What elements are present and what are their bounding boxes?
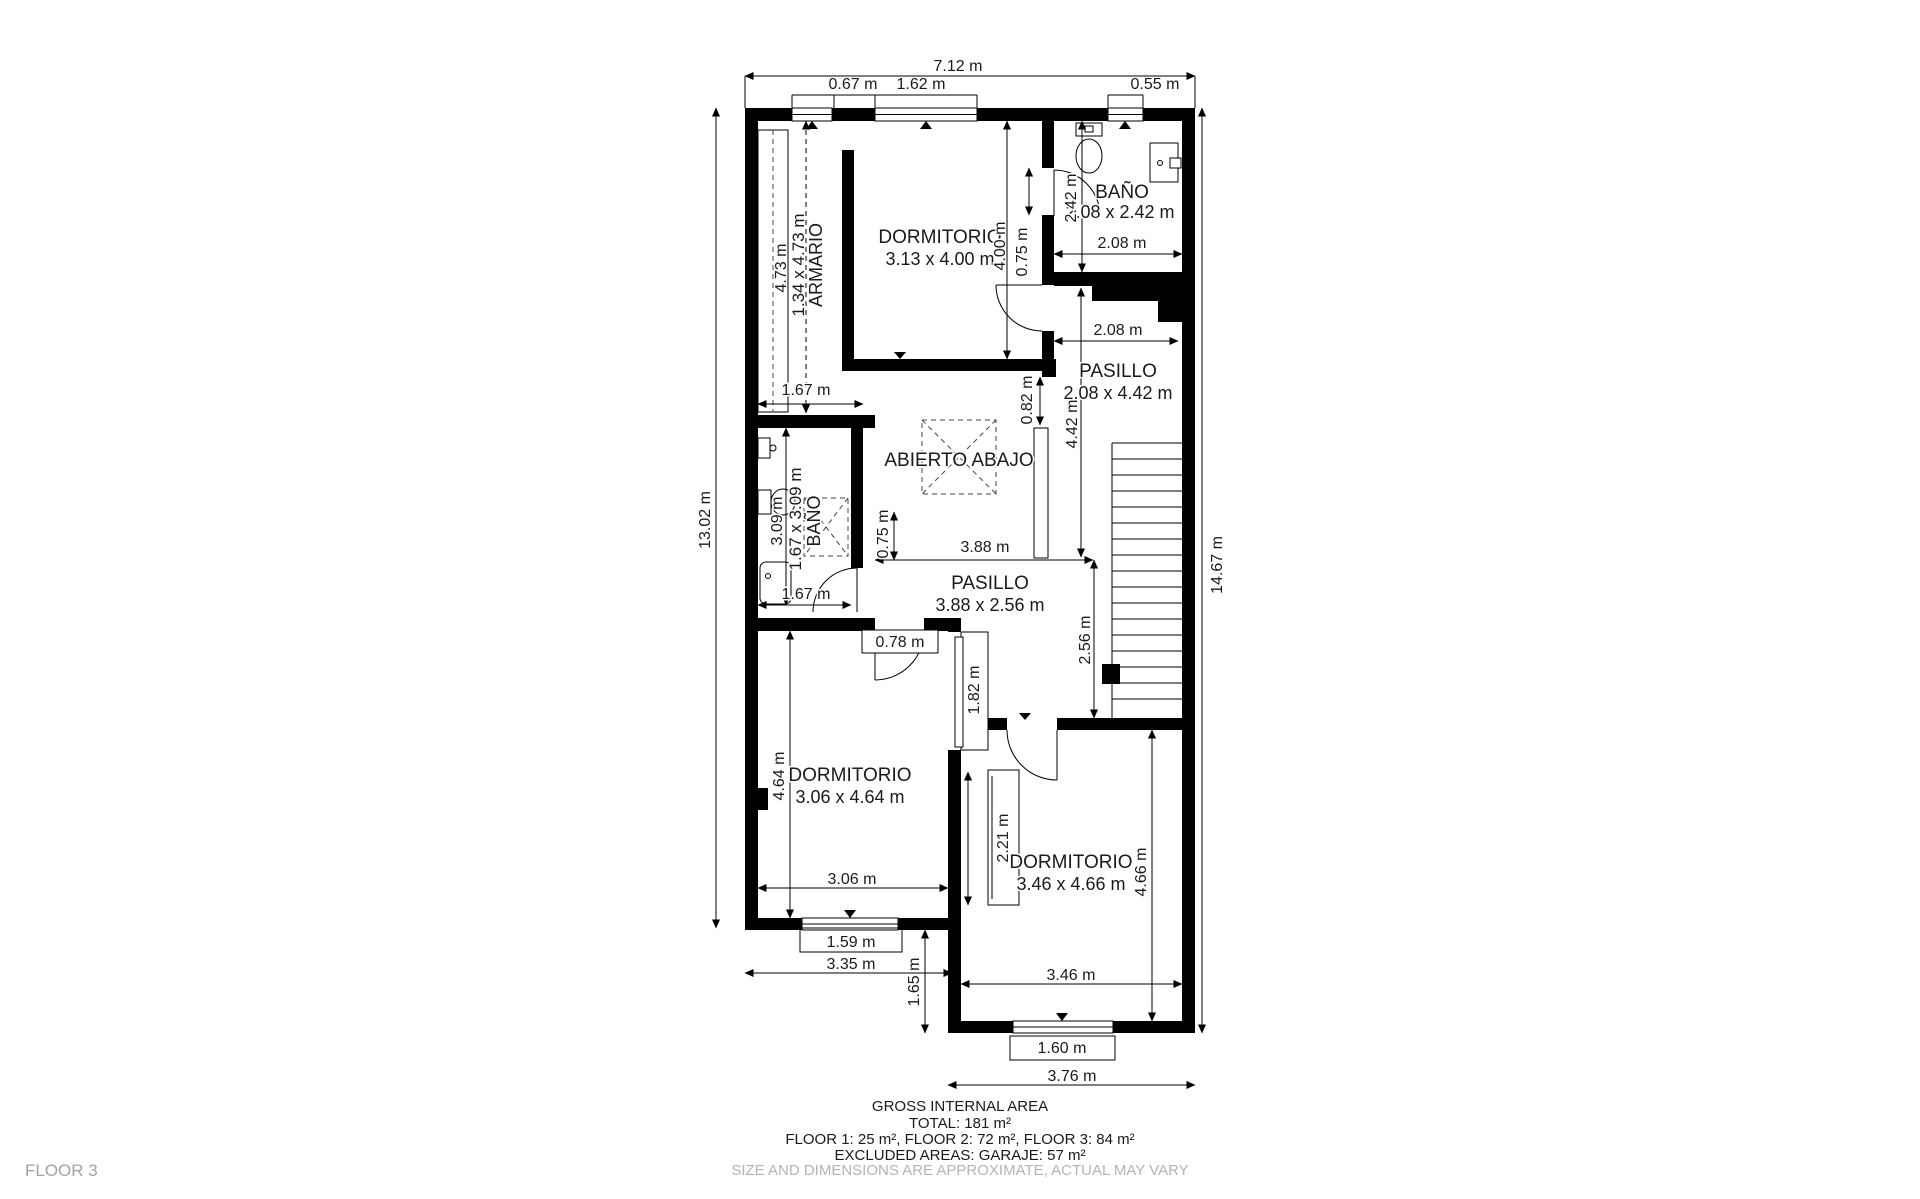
floor-plan-page: 7.12 m 0.67 m 1.62 m 0.55 m 13.02 m 14.6… <box>0 0 1920 1199</box>
room-label-armario: ARMARIO <box>806 223 826 307</box>
dim-offset-082: 0.82 m <box>1019 376 1036 425</box>
dim-sliding-1: 1.82 m <box>966 666 983 715</box>
dim-pasillo-height: 4.42 m <box>1064 400 1081 449</box>
dim-window-left: 0.67 m <box>829 76 878 93</box>
dim-height-left: 13.02 m <box>697 491 714 549</box>
room-size-dormitorio-bl: 3.06 x 4.64 m <box>795 787 904 807</box>
dim-dorm-br-height: 4.66 m <box>1133 848 1150 897</box>
washbasin-icon <box>758 438 770 458</box>
dim-bano-top-width: 2.08 m <box>1098 235 1147 252</box>
dim-height-right: 14.67 m <box>1209 536 1226 594</box>
dim-bano-left-height: 3.09 m <box>769 497 786 546</box>
room-label-bano-top: BAÑO <box>1095 181 1149 203</box>
room-size-armario: 1.34 x 4.73 m <box>789 213 808 316</box>
room-label-dormitorio-br: DORMITORIO <box>1009 852 1132 873</box>
toilet-button-icon <box>1085 126 1093 132</box>
sink-tap-icon <box>1170 158 1181 168</box>
dim-door-top: 0.75 m <box>1014 228 1031 277</box>
dim-section-right: 3.76 m <box>1048 1068 1097 1085</box>
door-dormitorio-top <box>996 285 1042 331</box>
room-label-pasillo: PASILLO <box>1079 361 1157 382</box>
dim-passage-075: 0.75 m <box>875 510 892 559</box>
dim-offset-165: 1.65 m <box>906 958 923 1007</box>
dim-dorm-bl-height: 4.64 m <box>771 752 788 801</box>
room-size-bano-top: 2.08 x 2.42 m <box>1065 202 1174 222</box>
dim-armario-height: 4.73 m <box>773 244 790 293</box>
dim-dorm-top-height: 4.00 m <box>992 222 1009 271</box>
dim-vestibule-width: 1.67 m <box>782 382 831 399</box>
dim-pasillo-width: 2.08 m <box>1094 322 1143 339</box>
room-size-pasillo-lower: 3.88 x 2.56 m <box>935 595 1044 615</box>
room-label-dormitorio-bl: DORMITORIO <box>788 765 911 786</box>
floor-plan-drawing: 7.12 m 0.67 m 1.62 m 0.55 m 13.02 m 14.6… <box>0 0 1920 1199</box>
footer-title: GROSS INTERNAL AREA <box>872 1098 1048 1115</box>
dim-pasillo-lower-height: 2.56 m <box>1077 616 1094 665</box>
dim-bano-top-height: 2.42 m <box>1063 174 1080 223</box>
floor-label: FLOOR 3 <box>25 1161 98 1180</box>
dim-window-bl: 1.59 m <box>827 934 876 951</box>
dim-door-bl-group: 0.78 m <box>862 630 938 653</box>
dim-section-left: 3.35 m <box>827 956 876 973</box>
dim-door-bl: 0.78 m <box>876 634 925 651</box>
footer-total: TOTAL: 181 m² <box>909 1115 1011 1132</box>
room-label-pasillo-lower: PASILLO <box>951 573 1029 594</box>
void-railing <box>1034 428 1048 558</box>
room-size-dormitorio-top: 3.13 x 4.00 m <box>885 249 994 269</box>
room-label-dormitorio-top: DORMITORIO <box>878 227 1001 248</box>
dim-total-width: 7.12 m <box>934 58 983 75</box>
bathroom-top-fixtures <box>1076 123 1181 182</box>
dim-window-mid: 1.62 m <box>897 76 946 93</box>
room-size-bano-left: 1.67 x 3.09 m <box>786 467 805 570</box>
dim-window-right: 0.55 m <box>1131 76 1180 93</box>
footer-floors: FLOOR 1: 25 m², FLOOR 2: 72 m², FLOOR 3:… <box>785 1131 1134 1148</box>
room-label-bano-left: BAÑO <box>803 495 824 546</box>
dim-dorm-br-width: 3.46 m <box>1047 967 1096 984</box>
dim-dorm-bl-width: 3.06 m <box>828 871 877 888</box>
toilet-icon <box>1076 139 1102 173</box>
room-size-dormitorio-br: 3.46 x 4.66 m <box>1016 874 1125 894</box>
dim-bano-left-width: 1.67 m <box>782 586 831 603</box>
dim-window-br: 1.60 m <box>1038 1040 1087 1057</box>
footer-disclaimer: SIZE AND DIMENSIONS ARE APPROXIMATE, ACT… <box>731 1162 1188 1179</box>
wall-pilaster <box>745 788 768 810</box>
dim-pasillo-lower-width: 3.88 m <box>961 539 1010 556</box>
room-label-abierto: ABIERTO ABAJO <box>884 450 1033 471</box>
